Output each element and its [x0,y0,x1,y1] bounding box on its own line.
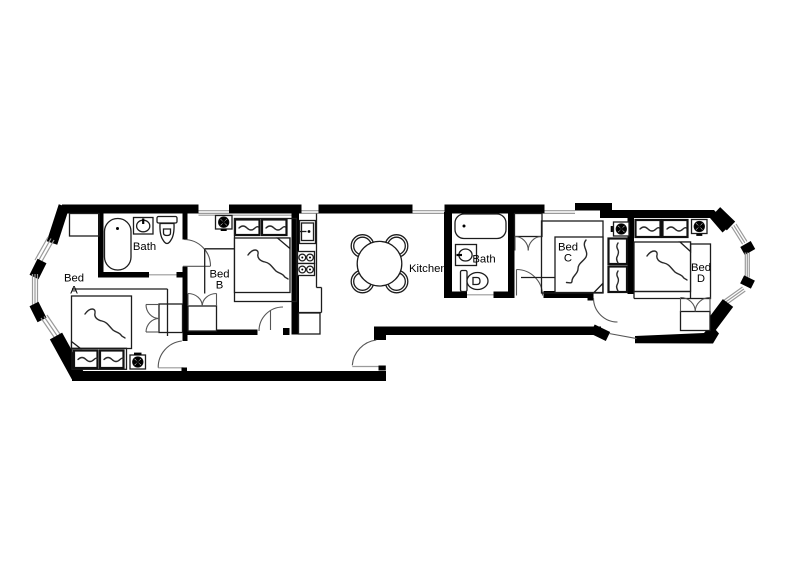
svg-text:C: C [564,253,572,265]
svg-text:Bed: Bed [64,273,84,285]
svg-text:Bath: Bath [472,254,495,266]
svg-text:B: B [216,280,224,292]
svg-text:A: A [70,285,78,297]
svg-text:D: D [697,273,705,285]
svg-text:Bath: Bath [133,241,156,253]
svg-text:Kitchen: Kitchen [409,263,447,275]
